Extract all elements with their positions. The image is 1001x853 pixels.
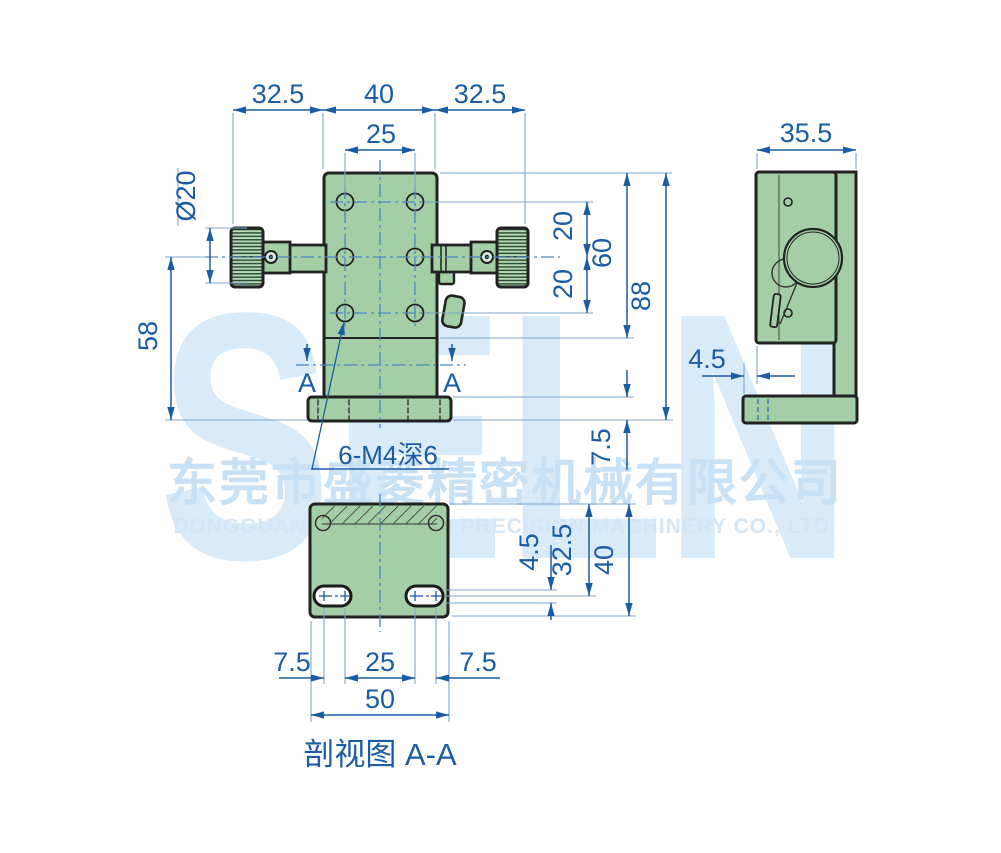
section-view [310, 504, 448, 617]
dim-sect-7-5-right: 7.5 [459, 647, 497, 677]
left-shaft-bracket [289, 245, 326, 272]
dim-sect-50: 50 [365, 684, 395, 714]
dim-60: 60 [587, 238, 617, 268]
section-caption: 剖视图 A-A [303, 737, 457, 772]
watermark-logo: SELN [158, 240, 852, 633]
watermark-company-cn: 东莞市盛菱精密机械有限公司 [167, 455, 843, 511]
dim-sect-40: 40 [589, 545, 619, 575]
dim-side-width: 35.5 [780, 118, 833, 148]
dim-knob-dia: Ø20 [171, 170, 201, 221]
right-shaft-bracket [432, 245, 472, 272]
side-foot [743, 396, 857, 423]
dim-58: 58 [133, 321, 163, 351]
section-label-right: A [443, 368, 461, 398]
section-label-left: A [298, 368, 316, 398]
side-knob-circle-outer [784, 229, 842, 287]
dim-sect-7-5-left: 7.5 [273, 647, 311, 677]
dim-20-upper: 20 [548, 211, 578, 241]
technical-drawing: SELN 东莞市盛菱精密机械有限公司 DONGGUAN SHENG LING P… [0, 0, 1001, 853]
watermark-company-en: DONGGUAN SHENG LING PRECISION MACHINERY … [173, 515, 836, 538]
dim-sect-4-5: 4.5 [514, 533, 544, 571]
dim-hole-span: 25 [366, 119, 396, 149]
dim-88: 88 [626, 281, 656, 311]
dim-top-left: 32.5 [252, 79, 305, 109]
thread-note: 6-M4深6 [338, 440, 438, 470]
dim-20-lower: 20 [548, 269, 578, 299]
dim-top-right: 32.5 [454, 79, 507, 109]
dim-top-mid: 40 [364, 79, 394, 109]
dim-sect-25: 25 [365, 647, 395, 677]
dim-base-7-5: 7.5 [586, 428, 616, 466]
dim-side-4-5: 4.5 [688, 344, 726, 374]
dim-sect-32-5: 32.5 [547, 524, 577, 577]
drawing-canvas: SELN 东莞市盛菱精密机械有限公司 DONGGUAN SHENG LING P… [0, 0, 1001, 853]
watermark: SELN 东莞市盛菱精密机械有限公司 DONGGUAN SHENG LING P… [158, 240, 852, 633]
clamp-lever [441, 295, 465, 329]
